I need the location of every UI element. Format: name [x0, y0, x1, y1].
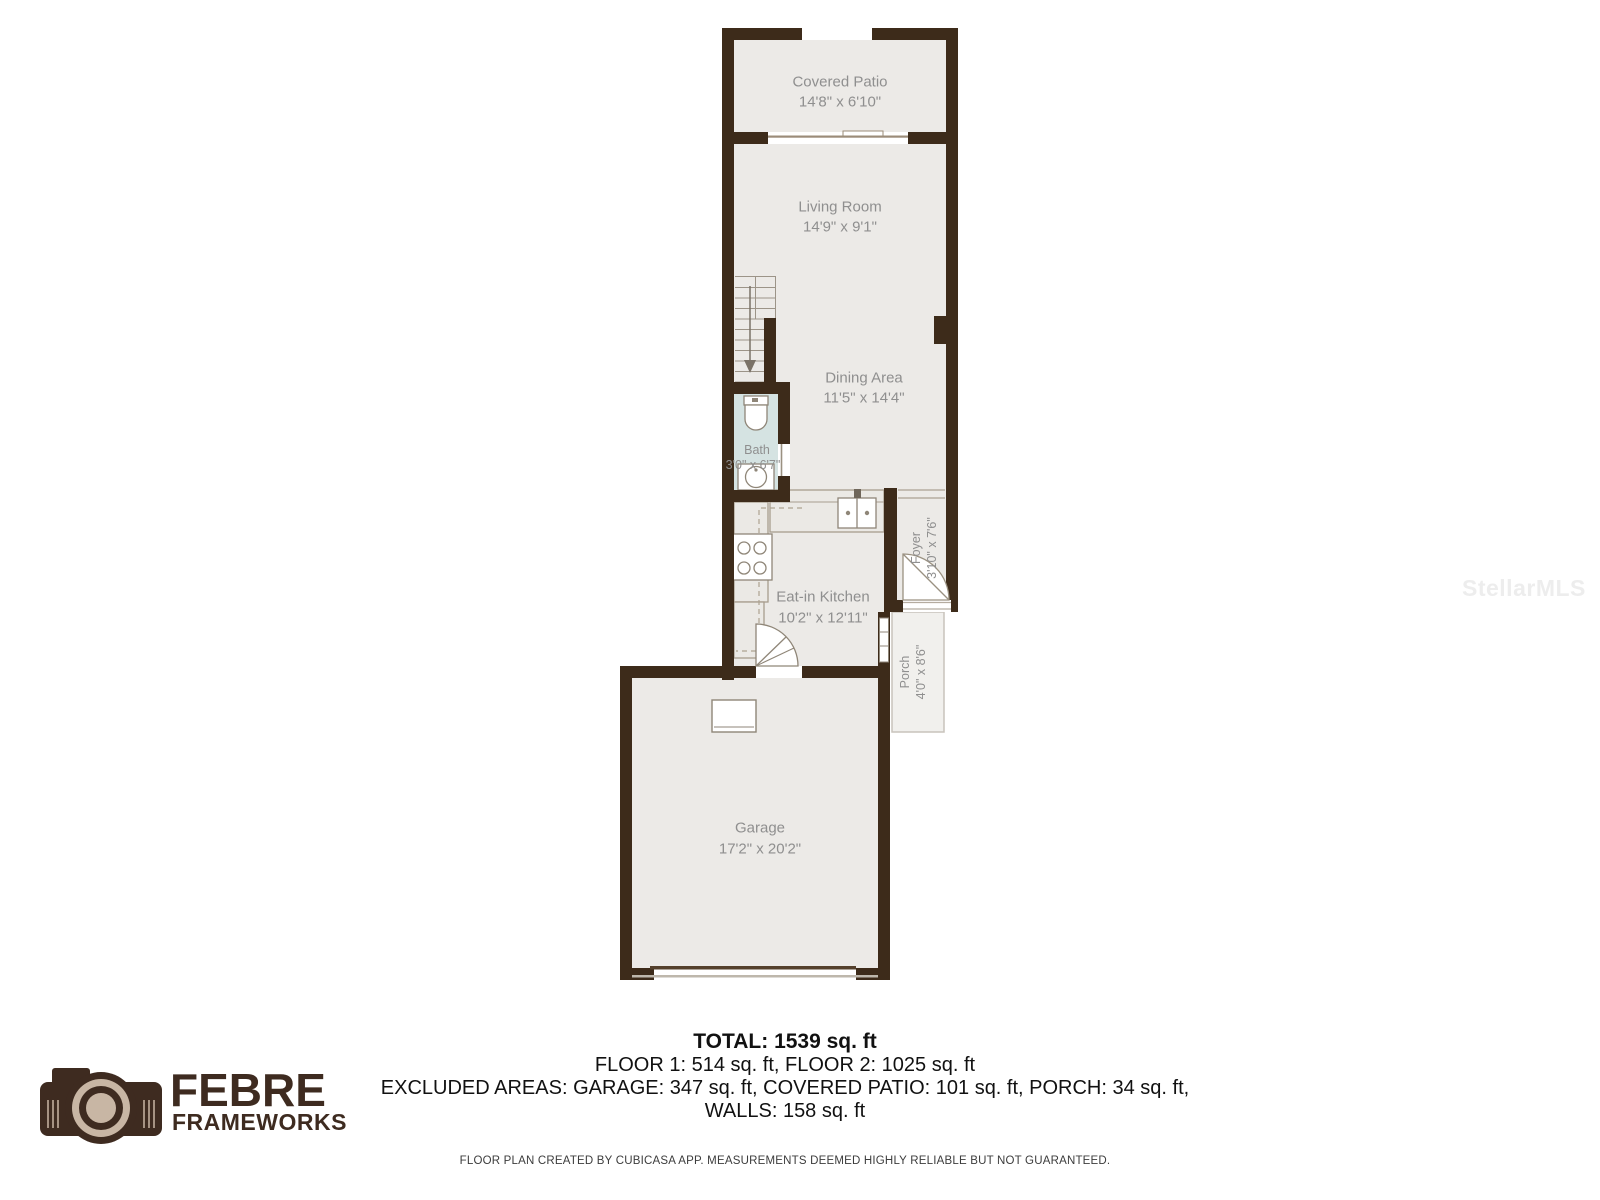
area-summary: TOTAL: 1539 sq. ft FLOOR 1: 514 sq. ft, …: [0, 1030, 1570, 1167]
porch-label: Porch: [898, 656, 912, 689]
covered-patio-label: Covered Patio: [792, 74, 887, 91]
garage-fixtures: [712, 700, 756, 732]
living-room-label: Living Room: [798, 199, 881, 216]
stellar-mls-watermark: StellarMLS: [1462, 575, 1586, 602]
wall-segment: [802, 666, 884, 678]
foyer-dims: 3'10" x 7'6": [925, 517, 939, 579]
porch-window: [880, 618, 889, 662]
wall-segment: [884, 488, 897, 612]
excluded-area-text: EXCLUDED AREAS: GARAGE: 347 sq. ft, COVE…: [0, 1077, 1570, 1100]
garage-door: [632, 966, 878, 978]
wall-segment: [620, 968, 654, 980]
wall-segment: [872, 28, 958, 40]
bath-dims: 3'0" x 6'7": [726, 458, 781, 472]
wall-segment: [856, 968, 890, 980]
wall-segment: [722, 28, 734, 680]
dining-area-label: Dining Area: [825, 370, 903, 387]
faucet-icon: [854, 489, 861, 498]
porch-dims: 4'0" x 8'6": [914, 645, 928, 700]
wall-segment: [620, 666, 632, 980]
foyer-label: Foyer: [909, 532, 923, 564]
floor-plan-drawing: Covered Patio 14'8" x 6'10" Living Room …: [0, 0, 1600, 1200]
garage-dims: 17'2" x 20'2": [719, 841, 801, 858]
garage-label: Garage: [735, 820, 785, 837]
wall-segment: [908, 132, 958, 144]
covered-patio-dims: 14'8" x 6'10": [799, 94, 881, 111]
floor-plan-page: Covered Patio 14'8" x 6'10" Living Room …: [0, 0, 1600, 1200]
wall-segment: [884, 600, 903, 612]
kitchen-dims: 10'2" x 12'11": [778, 610, 868, 627]
wall-segment: [934, 316, 946, 344]
walls-area-text: WALLS: 158 sq. ft: [0, 1100, 1570, 1123]
stove: [732, 534, 772, 580]
bath-label: Bath: [744, 443, 770, 457]
toilet-icon: [744, 396, 768, 430]
wall-segment: [764, 318, 776, 392]
wall-segment: [878, 666, 890, 980]
kitchen-label: Eat-in Kitchen: [776, 589, 869, 606]
wall-segment: [620, 666, 756, 678]
floors-area-text: FLOOR 1: 514 sq. ft, FLOOR 2: 1025 sq. f…: [0, 1054, 1570, 1077]
wall-segment: [722, 132, 768, 144]
disclaimer-text: FLOOR PLAN CREATED BY CUBICASA APP. MEAS…: [0, 1155, 1570, 1167]
total-area-text: TOTAL: 1539 sq. ft: [0, 1030, 1570, 1054]
wall-segment: [946, 28, 958, 612]
wall-segment: [722, 490, 790, 502]
dining-area-dims: 11'5" x 14'4": [823, 390, 904, 407]
wall-segment: [778, 382, 790, 444]
sliding-door: [768, 131, 908, 138]
living-room-dims: 14'9" x 9'1": [803, 219, 877, 236]
